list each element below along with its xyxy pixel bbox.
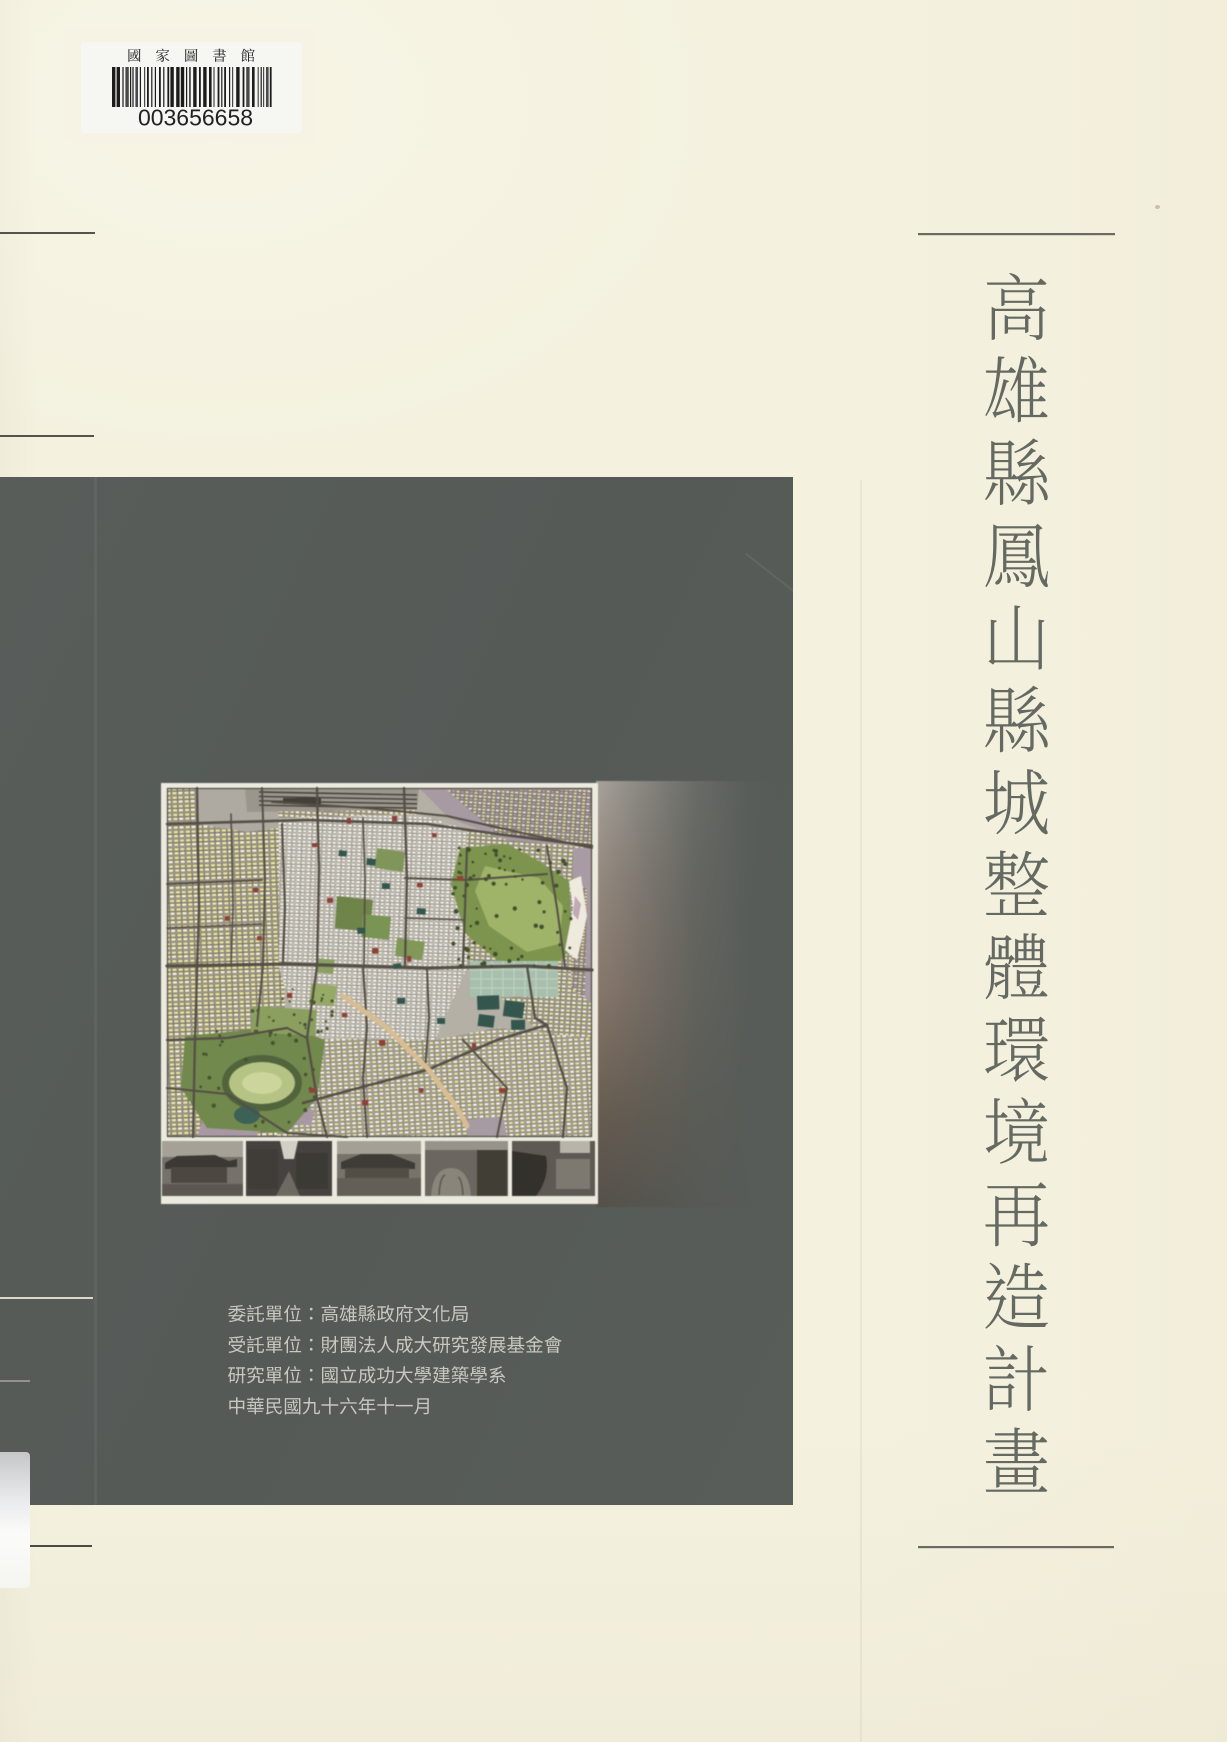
svg-text:003656658: 003656658 xyxy=(138,105,253,131)
